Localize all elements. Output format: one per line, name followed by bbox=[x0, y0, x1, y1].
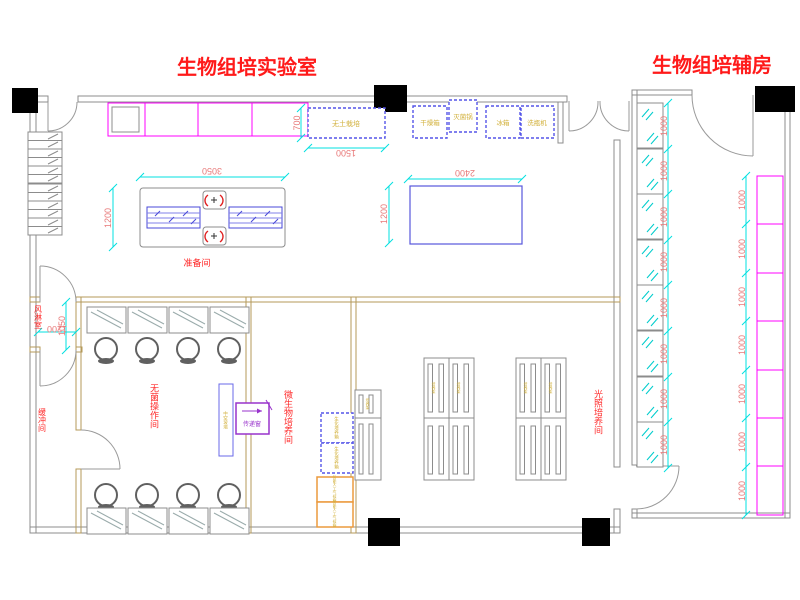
stool bbox=[177, 484, 199, 510]
stool bbox=[95, 338, 117, 364]
culture-rack-label: 培养架 bbox=[548, 382, 553, 395]
dim-module: 1000 bbox=[659, 252, 669, 272]
stool bbox=[136, 484, 158, 510]
panel bbox=[757, 466, 783, 515]
drying-oven-label: 干燥箱 bbox=[420, 118, 440, 127]
stool bbox=[218, 338, 240, 364]
door-arc bbox=[692, 95, 753, 156]
dim-module: 1000 bbox=[737, 432, 747, 452]
shoe-cabinet bbox=[28, 184, 62, 235]
dim-module: 1000 bbox=[737, 335, 747, 355]
main-lab-title: 生物组培实验室 bbox=[177, 55, 317, 79]
stool bbox=[218, 484, 240, 510]
dim-label-soilless-width: 1500 bbox=[336, 148, 356, 158]
clean-bench bbox=[210, 508, 249, 534]
bio-incubator-label: 生化培养箱 bbox=[334, 446, 340, 471]
culture-rack-label: 培养架 bbox=[523, 382, 528, 395]
panel bbox=[757, 418, 783, 466]
dim-module: 1000 bbox=[737, 481, 747, 501]
door-arc bbox=[636, 466, 679, 509]
prep-bench bbox=[229, 207, 282, 228]
dim-module: 1000 bbox=[659, 389, 669, 409]
dim-module: 1000 bbox=[659, 116, 669, 136]
shoe-cabinet bbox=[28, 132, 62, 183]
clean-bench bbox=[87, 508, 126, 534]
buffer-room-label: 缓冲间 bbox=[38, 407, 47, 433]
prep-room-table bbox=[140, 188, 285, 247]
door-arc bbox=[81, 430, 120, 469]
soilless-culture-label: 无土栽培 bbox=[332, 119, 360, 128]
climate-chamber-label: 智能人工气候箱 bbox=[332, 500, 337, 528]
aux-magenta-panels bbox=[757, 176, 783, 515]
dim-module: 1000 bbox=[737, 190, 747, 210]
prep-bench bbox=[147, 207, 200, 228]
wall-counter bbox=[108, 103, 308, 136]
dim-label-table-depth: 1200 bbox=[379, 204, 389, 224]
top-equipment-row: 无土栽培 干燥箱 灭菌锅 冰箱 洗瓶机 bbox=[308, 100, 554, 138]
culture-racks: 培养架 培养架 培养架 培养架 培养架 bbox=[355, 358, 566, 480]
incubators: 生化培养箱 生化培养箱 智能人工气候箱 智能人工气候箱 bbox=[317, 413, 353, 528]
dim-module: 1000 bbox=[659, 298, 669, 318]
stool bbox=[95, 484, 117, 510]
dim-label-prep-width: 3050 bbox=[202, 166, 222, 176]
dim-module: 1000 bbox=[659, 161, 669, 181]
clean-bench bbox=[128, 508, 167, 534]
pass-window-label: 传递窗 bbox=[243, 420, 261, 428]
panel bbox=[757, 321, 783, 370]
stool bbox=[136, 338, 158, 364]
clean-bench bbox=[128, 307, 167, 333]
dim-module: 1000 bbox=[659, 435, 669, 455]
door-arc bbox=[40, 266, 76, 302]
dim-label-prep-depth: 1200 bbox=[103, 208, 113, 228]
aux-room-title: 生物组培辅房 bbox=[652, 53, 772, 77]
panel bbox=[757, 370, 783, 418]
clean-bench bbox=[169, 307, 208, 333]
clean-bench bbox=[210, 307, 249, 333]
dim-module: 1000 bbox=[737, 239, 747, 259]
stool bbox=[177, 338, 199, 364]
door-arc bbox=[569, 101, 598, 131]
dim-label-soilless-depth: 700 bbox=[292, 115, 302, 130]
aux-glass-panels bbox=[637, 103, 663, 467]
dim-module: 1000 bbox=[659, 344, 669, 364]
fridge-label: 冰箱 bbox=[497, 118, 511, 127]
floor-plan-drawing: 生物组培实验室 生物组培辅房 bbox=[0, 0, 800, 600]
dim-label-table-width: 2400 bbox=[455, 168, 475, 178]
counter-sink bbox=[112, 107, 139, 132]
glass-partition-label: 中空玻璃 bbox=[223, 410, 229, 431]
dim-module: 1000 bbox=[737, 287, 747, 307]
center-table bbox=[410, 186, 522, 244]
prep-room-label: 准备间 bbox=[183, 257, 210, 268]
dim-module: 1000 bbox=[737, 384, 747, 404]
sterile-op-room-label: 无菌操作间 bbox=[149, 383, 159, 429]
sterilizer-label: 灭菌锅 bbox=[453, 112, 473, 121]
door-arc bbox=[40, 350, 76, 386]
panel bbox=[757, 273, 783, 321]
panel bbox=[757, 176, 783, 224]
climate-chamber-label: 智能人工气候箱 bbox=[332, 475, 337, 503]
panel bbox=[757, 224, 783, 273]
bio-incubator-label: 生化培养箱 bbox=[334, 416, 340, 441]
air-shower-label: 风淋室 bbox=[34, 305, 43, 329]
bottle-washer-label: 洗瓶机 bbox=[527, 118, 547, 127]
micro-culture-room-label: 微生物培养间 bbox=[283, 389, 293, 445]
clean-bench bbox=[169, 508, 208, 534]
floor-plan-page: 生物组培实验室 生物组培辅房 bbox=[0, 0, 800, 600]
culture-rack-label: 培养架 bbox=[431, 382, 436, 395]
door-arc bbox=[48, 102, 77, 131]
door-arc bbox=[600, 101, 629, 131]
light-culture-room-label: 光照培养间 bbox=[593, 388, 603, 435]
dim-label-shower-width: 1200 bbox=[47, 324, 67, 334]
dim-module: 1000 bbox=[659, 207, 669, 227]
pass-window: 传递窗 bbox=[236, 400, 272, 434]
culture-rack-label: 培养架 bbox=[365, 398, 370, 411]
clean-bench bbox=[87, 307, 126, 333]
culture-rack-label: 培养架 bbox=[456, 382, 461, 395]
aux-left-dim-chain bbox=[664, 99, 672, 472]
